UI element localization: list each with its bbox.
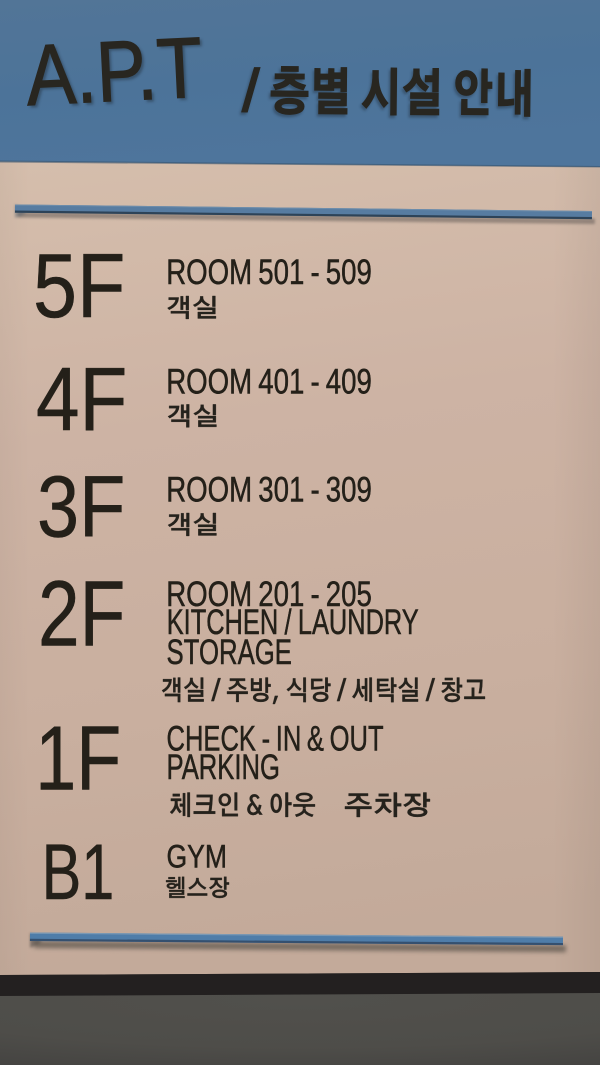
svg-text:ROOM 301 - 309: ROOM 301 - 309 <box>166 469 372 509</box>
svg-text:PARKING: PARKING <box>167 748 280 787</box>
svg-text:GYM: GYM <box>167 839 227 875</box>
svg-text:5F: 5F <box>33 236 125 337</box>
svg-text:B1: B1 <box>42 828 115 916</box>
svg-text:ROOM 501 - 509: ROOM 501 - 509 <box>166 252 372 292</box>
svg-text:1F: 1F <box>35 707 121 809</box>
svg-text:3F: 3F <box>37 459 125 556</box>
svg-text:ROOM 401 - 409: ROOM 401 - 409 <box>166 361 372 401</box>
svg-text:2F: 2F <box>38 562 125 666</box>
svg-text:A.P.T: A.P.T <box>24 20 205 125</box>
svg-text:4F: 4F <box>36 349 127 449</box>
svg-text:STORAGE: STORAGE <box>167 633 292 672</box>
